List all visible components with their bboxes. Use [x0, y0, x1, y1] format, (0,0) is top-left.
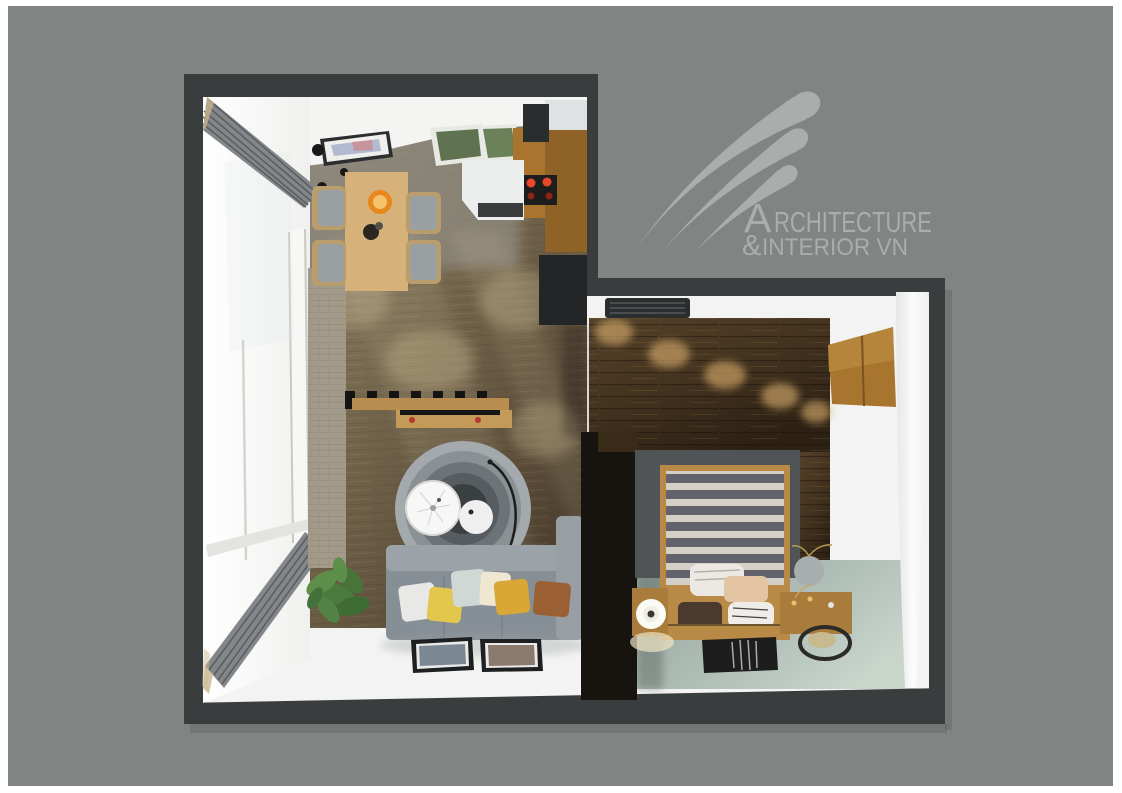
svg-text:&: & — [742, 230, 761, 262]
svg-text:INTERIOR VN: INTERIOR VN — [762, 234, 908, 261]
